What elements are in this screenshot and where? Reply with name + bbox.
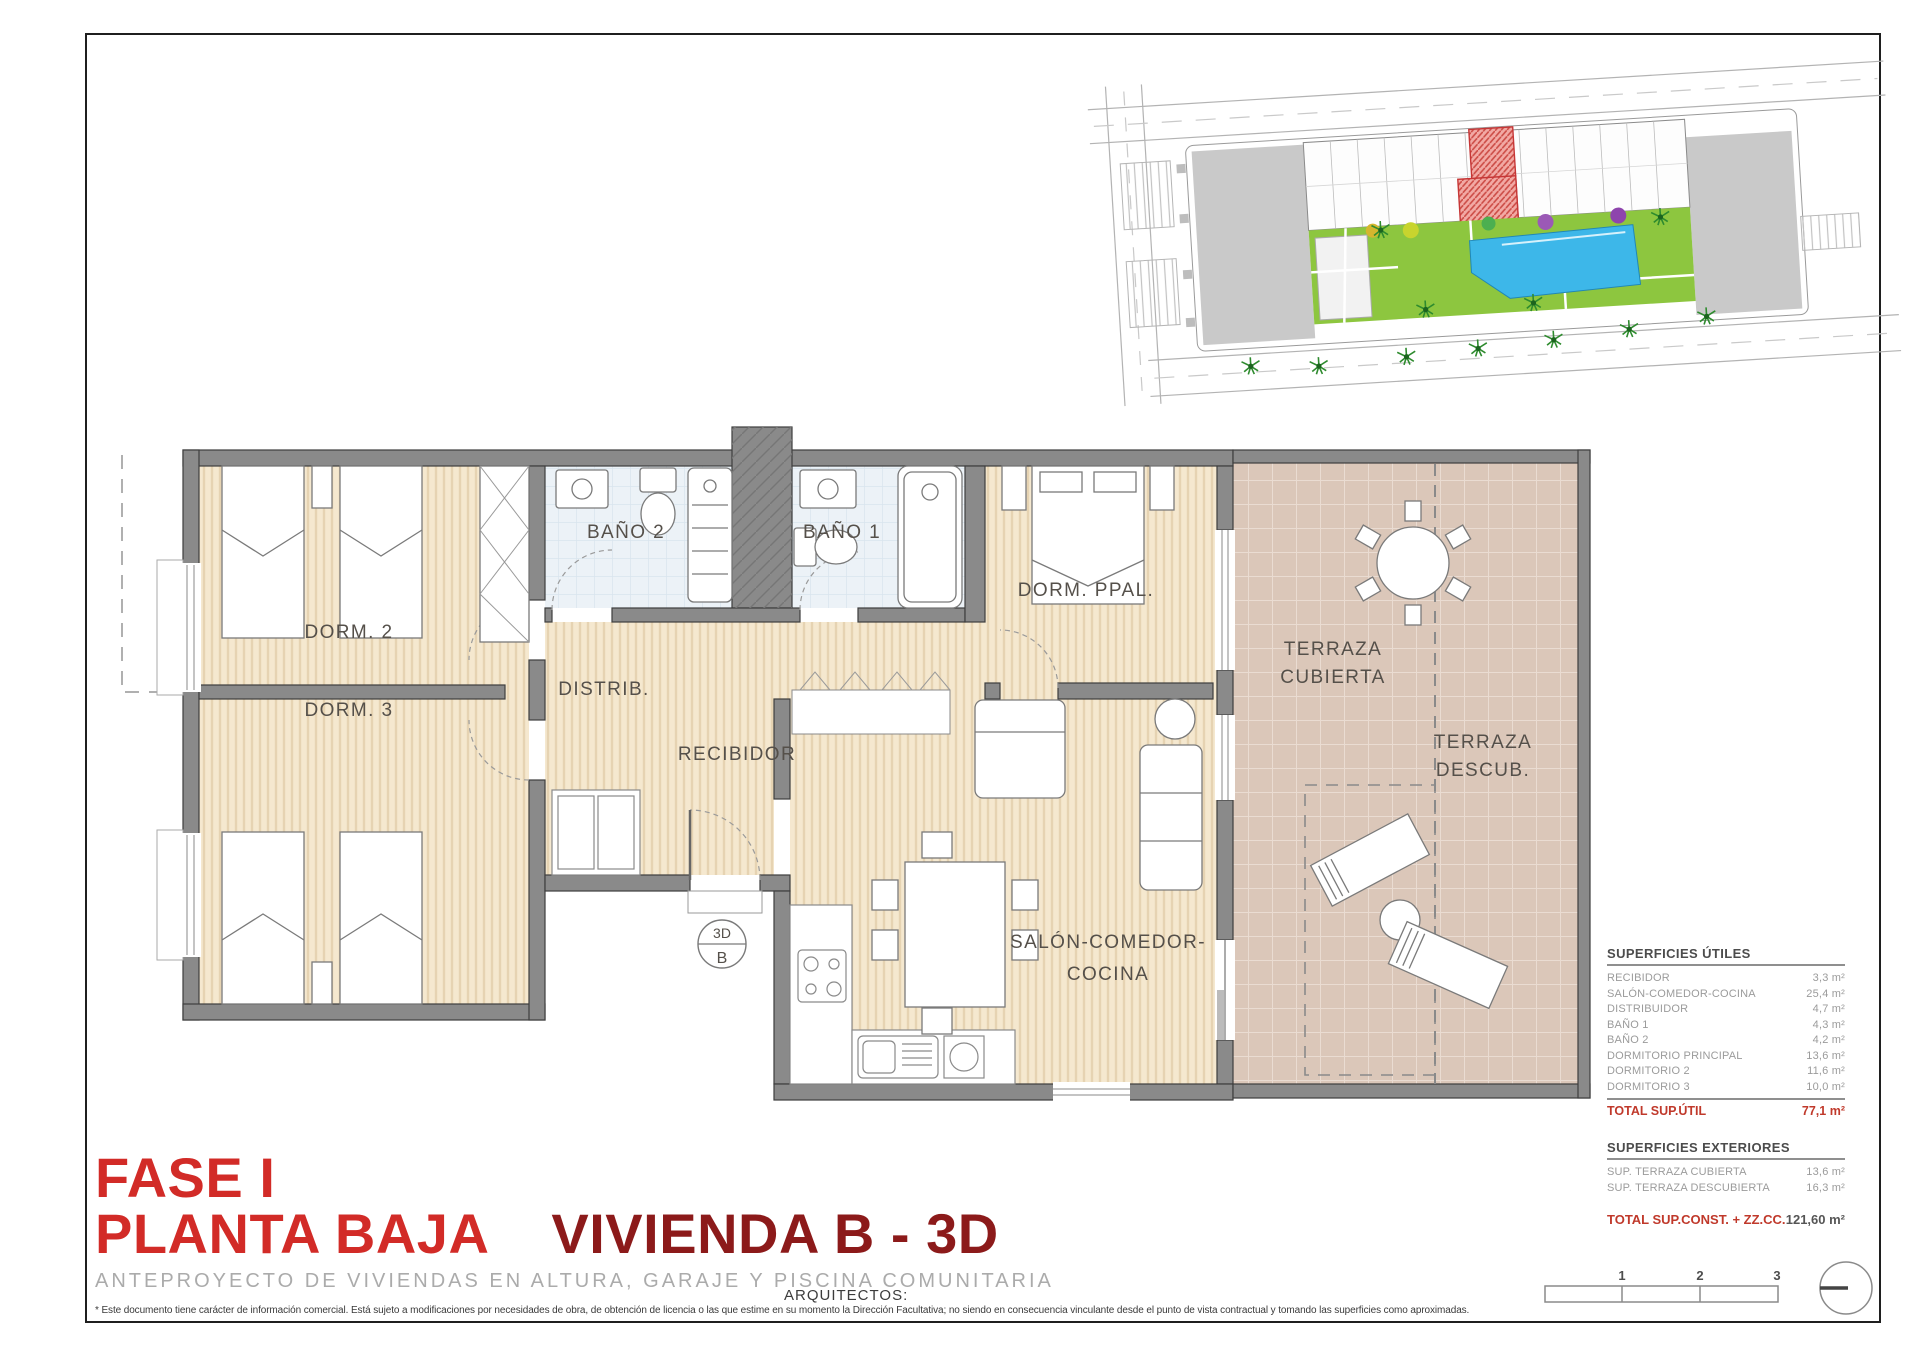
total-value: 121,60 m² (1786, 1212, 1845, 1227)
nightstand (1002, 466, 1026, 510)
floor-title: PLANTA BAJA (95, 1206, 489, 1262)
project-subtitle: ANTEPROYECTO DE VIVIENDAS EN ALTURA, GAR… (95, 1270, 1054, 1293)
bed (340, 466, 422, 638)
nightstand (312, 466, 332, 508)
phase-title: FASE I (95, 1150, 999, 1206)
entry-step (688, 891, 762, 913)
row-label: DORMITORIO PRINCIPAL (1607, 1049, 1743, 1065)
table-row: RECIBIDOR 3,3 m² (1607, 971, 1845, 987)
label-dorm3: DORM. 3 (305, 700, 394, 721)
label-terraza-descub-2: DESCUB. (1436, 760, 1530, 781)
row-label: DORMITORIO 3 (1607, 1080, 1690, 1096)
label-terraza-cubierta-1: TERRAZA (1284, 639, 1382, 660)
row-label: RECIBIDOR (1607, 971, 1670, 987)
disclaimer-text: * Este documento tiene carácter de infor… (95, 1305, 1865, 1316)
nightstand (1150, 466, 1174, 510)
table-row: SUP. TERRAZA CUBIERTA 13,6 m² (1607, 1165, 1845, 1181)
recibidor-closet (552, 790, 640, 875)
label-salon-1: SALÓN-COMEDOR- (1010, 931, 1206, 953)
label-salon-2: COCINA (1067, 964, 1149, 985)
total-util-row: TOTAL SUP.ÚTIL 77,1 m² (1607, 1098, 1845, 1118)
total-const-row: TOTAL SUP.CONST. + ZZ.CC. 121,60 m² (1607, 1212, 1845, 1227)
floor-plan: 3D B (122, 427, 1590, 1102)
label-dorm-ppal: DORM. PPAL. (1018, 580, 1154, 601)
sink (556, 470, 608, 508)
row-label: DORMITORIO 2 (1607, 1064, 1690, 1080)
kitchen-sink (858, 1036, 938, 1078)
table-row: SUP. TERRAZA DESCUBIERTA 16,3 m² (1607, 1181, 1845, 1197)
scale-tick-3: 3 (1773, 1268, 1780, 1283)
row-value: 4,3 m² (1813, 1018, 1845, 1034)
row-label: BAÑO 1 (1607, 1018, 1649, 1034)
bed (222, 832, 304, 1004)
bathtub (898, 466, 962, 608)
row-value: 10,0 m² (1806, 1080, 1845, 1096)
label-terraza-cubierta-2: CUBIERTA (1280, 667, 1386, 688)
surface-utiles-table: SUPERFICIES ÚTILES RECIBIDOR 3,3 m² SALÓ… (1607, 946, 1845, 1118)
sofa (1140, 745, 1202, 890)
row-value: 13,6 m² (1806, 1049, 1845, 1065)
title-block: FASE I PLANTA BAJA VIVIENDA B - 3D (95, 1150, 999, 1262)
chair (1012, 880, 1038, 910)
row-value: 4,2 m² (1813, 1033, 1845, 1049)
table-row: DORMITORIO 3 10,0 m² (1607, 1080, 1845, 1096)
total-label: TOTAL SUP.ÚTIL (1607, 1104, 1706, 1118)
table-row: DORMITORIO PRINCIPAL 13,6 m² (1607, 1049, 1845, 1065)
table-row: DISTRIBUIDOR 4,7 m² (1607, 1002, 1845, 1018)
pillow (1094, 472, 1136, 492)
side-table (1155, 699, 1195, 739)
chair (872, 930, 898, 960)
wardrobe (480, 466, 529, 642)
scale-bar: 1 2 3 (1545, 1268, 1781, 1302)
surface-exteriores-title: SUPERFICIES EXTERIORES (1607, 1140, 1845, 1160)
row-value: 25,4 m² (1806, 987, 1845, 1003)
table-row: SALÓN-COMEDOR-COCINA 25,4 m² (1607, 987, 1845, 1003)
plan-marker: 3D B (698, 920, 746, 968)
sink (800, 470, 856, 508)
marker-bottom-label: B (717, 950, 728, 967)
bed (222, 466, 304, 638)
label-distrib: DISTRIB. (558, 679, 649, 700)
toilet-tank (640, 468, 676, 492)
row-value: 16,3 m² (1806, 1181, 1845, 1197)
round-table (1377, 527, 1449, 599)
site-gray-right (1686, 131, 1803, 315)
row-value: 3,3 m² (1813, 971, 1845, 987)
chair (922, 832, 952, 858)
row-value: 13,6 m² (1806, 1165, 1845, 1181)
architects-label: ARQUITECTOS: (784, 1287, 908, 1304)
site-gray-left (1192, 145, 1316, 345)
dining-table (905, 862, 1005, 1007)
label-bano1: BAÑO 1 (803, 521, 881, 543)
shaft-hatch (732, 427, 792, 608)
surface-exteriores-table: SUPERFICIES EXTERIORES SUP. TERRAZA CUBI… (1607, 1140, 1845, 1227)
row-label: SUP. TERRAZA CUBIERTA (1607, 1165, 1747, 1181)
chair (922, 1008, 952, 1034)
row-label: SALÓN-COMEDOR-COCINA (1607, 987, 1756, 1003)
pillow (1040, 472, 1082, 492)
label-dorm2: DORM. 2 (305, 622, 394, 643)
total-label: TOTAL SUP.CONST. + ZZ.CC. (1607, 1212, 1786, 1227)
scale-tick-1: 1 (1618, 1268, 1625, 1283)
dorm2-furniture (222, 466, 529, 642)
table-row: BAÑO 1 4,3 m² (1607, 1018, 1845, 1034)
chair (872, 880, 898, 910)
table-row: BAÑO 2 4,2 m² (1607, 1033, 1845, 1049)
site-plan (1086, 39, 1901, 407)
bed (340, 832, 422, 1004)
unit-title: VIVIENDA B - 3D (551, 1206, 998, 1262)
shower (688, 468, 732, 602)
label-terraza-descub-1: TERRAZA (1434, 732, 1532, 753)
chaise (975, 700, 1065, 798)
row-label: SUP. TERRAZA DESCUBIERTA (1607, 1181, 1770, 1197)
total-value: 77,1 m² (1802, 1104, 1845, 1118)
nightstand (312, 962, 332, 1004)
surface-utiles-title: SUPERFICIES ÚTILES (1607, 946, 1845, 966)
marker-top-label: 3D (713, 925, 731, 941)
row-label: DISTRIBUIDOR (1607, 1002, 1688, 1018)
table-row: DORMITORIO 2 11,6 m² (1607, 1064, 1845, 1080)
row-value: 11,6 m² (1807, 1064, 1845, 1080)
row-label: BAÑO 2 (1607, 1033, 1649, 1049)
label-recibidor: RECIBIDOR (678, 744, 796, 765)
scale-tick-2: 2 (1696, 1268, 1703, 1283)
label-bano2: BAÑO 2 (587, 521, 665, 543)
row-value: 4,7 m² (1813, 1002, 1845, 1018)
surface-tables: SUPERFICIES ÚTILES RECIBIDOR 3,3 m² SALÓ… (1607, 946, 1845, 1227)
